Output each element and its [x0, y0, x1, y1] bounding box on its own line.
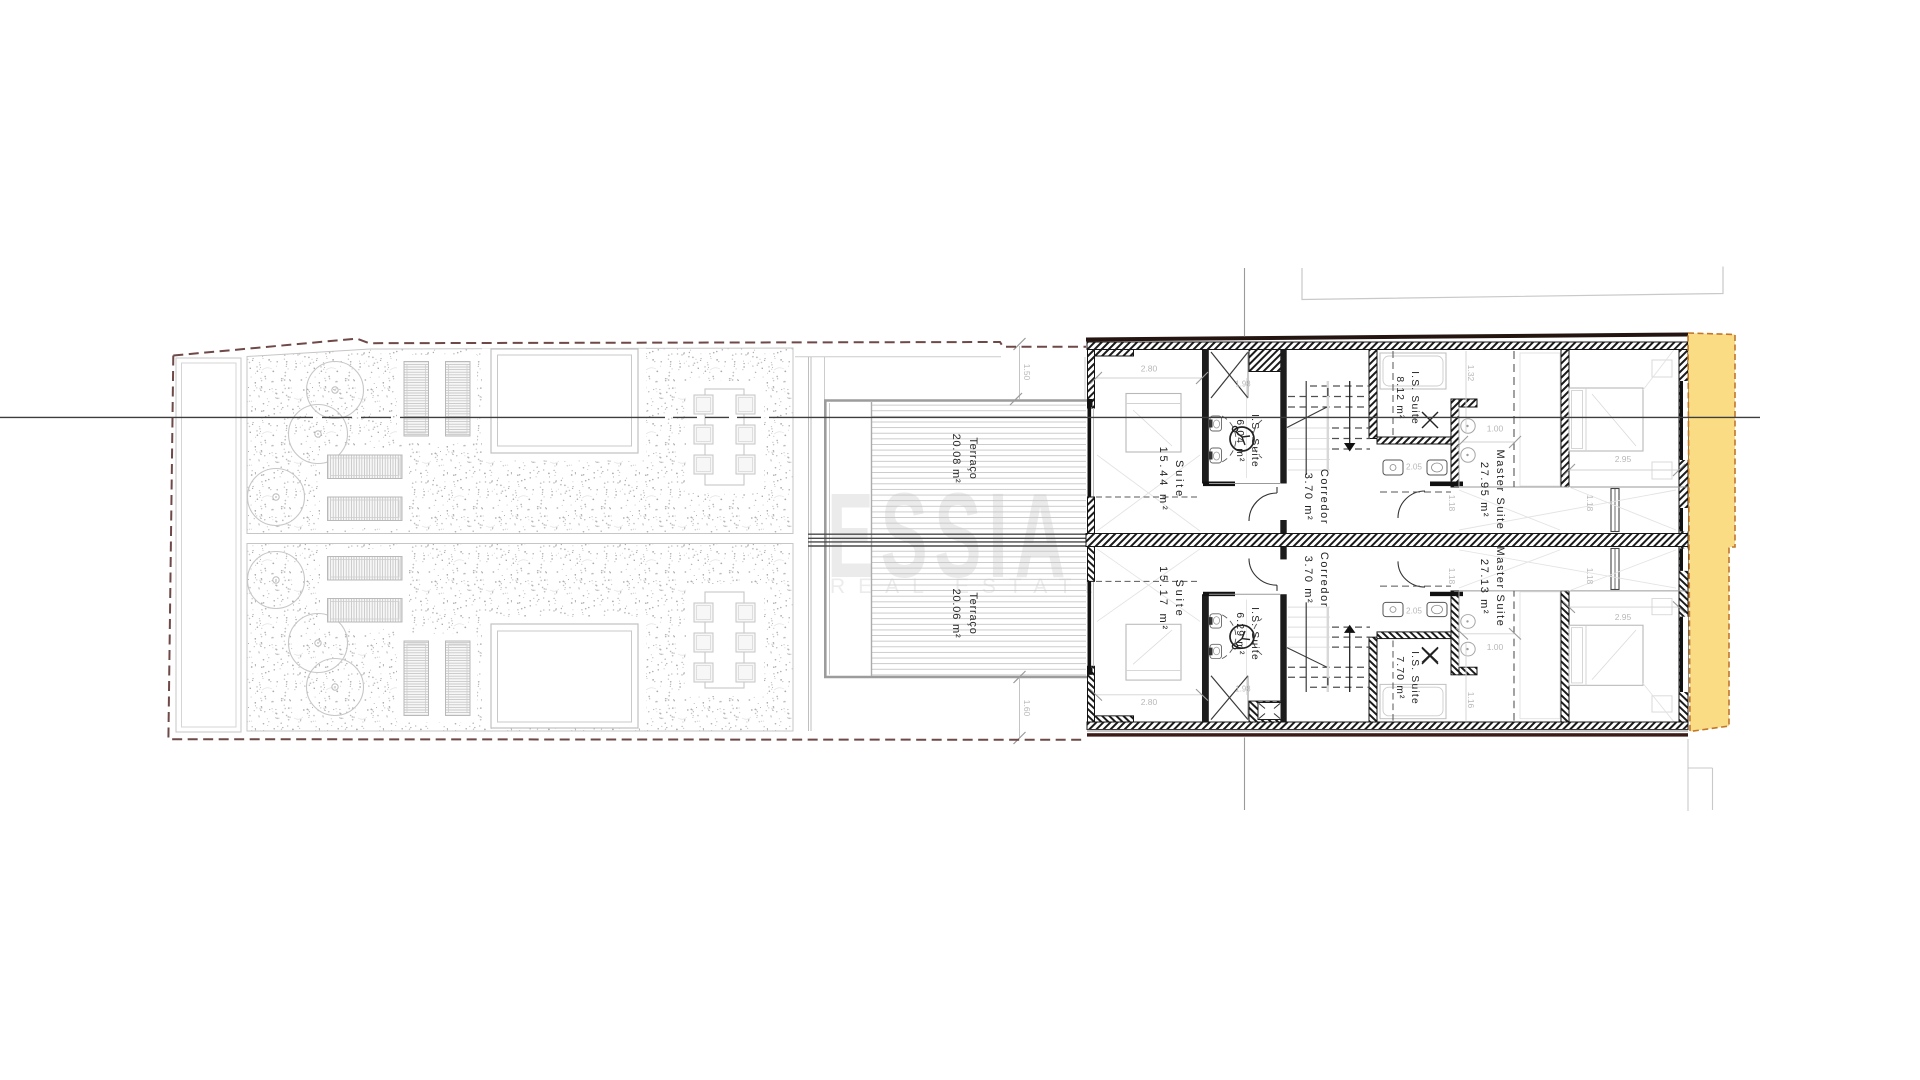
svg-text:6.04 m²: 6.04 m² [1234, 419, 1245, 462]
svg-text:1.18: 1.18 [1585, 568, 1595, 585]
svg-text:3.70 m²: 3.70 m² [1302, 473, 1314, 522]
svg-text:1.00: 1.00 [1487, 423, 1504, 433]
svg-text:2.05: 2.05 [1406, 606, 1422, 615]
svg-text:I.S. Suite: I.S. Suite [1409, 651, 1420, 705]
svg-text:1.18: 1.18 [1585, 495, 1595, 512]
svg-text:15.17 m²: 15.17 m² [1157, 566, 1169, 632]
svg-text:15.44 m²: 15.44 m² [1157, 447, 1169, 513]
svg-text:1.00: 1.00 [1487, 642, 1504, 652]
svg-text:1.16: 1.16 [1466, 692, 1476, 709]
svg-text:I.S. Suite: I.S. Suite [1249, 414, 1260, 468]
svg-text:2.80: 2.80 [1141, 363, 1158, 373]
svg-text:I.S. Suite: I.S. Suite [1249, 607, 1260, 661]
svg-text:2.05: 2.05 [1406, 462, 1422, 471]
svg-text:3.70 m²: 3.70 m² [1302, 556, 1314, 605]
svg-text:20.08 m²: 20.08 m² [950, 434, 962, 484]
svg-text:1.60: 1.60 [1022, 700, 1032, 717]
svg-text:Terraço: Terraço [967, 437, 979, 479]
svg-text:Terraço: Terraço [967, 592, 979, 634]
svg-text:Corredor: Corredor [1318, 469, 1330, 525]
svg-text:2.95: 2.95 [1615, 612, 1632, 622]
svg-text:1.98: 1.98 [1235, 380, 1250, 389]
svg-text:2.80: 2.80 [1141, 697, 1158, 707]
svg-text:Master Suite: Master Suite [1494, 547, 1506, 628]
svg-text:20.06 m²: 20.06 m² [950, 589, 962, 639]
svg-text:Suite: Suite [1173, 579, 1185, 618]
svg-text:1.32: 1.32 [1466, 365, 1476, 382]
svg-text:2.95: 2.95 [1615, 454, 1632, 464]
svg-text:27.95 m²: 27.95 m² [1478, 462, 1490, 518]
svg-text:27.13 m²: 27.13 m² [1478, 559, 1490, 615]
svg-text:Suite: Suite [1173, 460, 1185, 499]
svg-text:Corredor: Corredor [1318, 552, 1330, 608]
svg-text:1.98: 1.98 [1235, 685, 1250, 694]
svg-text:1.18: 1.18 [1447, 568, 1457, 585]
svg-text:6.29 m²: 6.29 m² [1234, 612, 1245, 655]
svg-text:Master Suite: Master Suite [1494, 450, 1506, 531]
svg-text:1.18: 1.18 [1447, 495, 1457, 512]
svg-text:8.12 m²: 8.12 m² [1394, 376, 1405, 419]
svg-text:7.70 m²: 7.70 m² [1394, 656, 1405, 699]
svg-text:1.50: 1.50 [1022, 364, 1032, 381]
